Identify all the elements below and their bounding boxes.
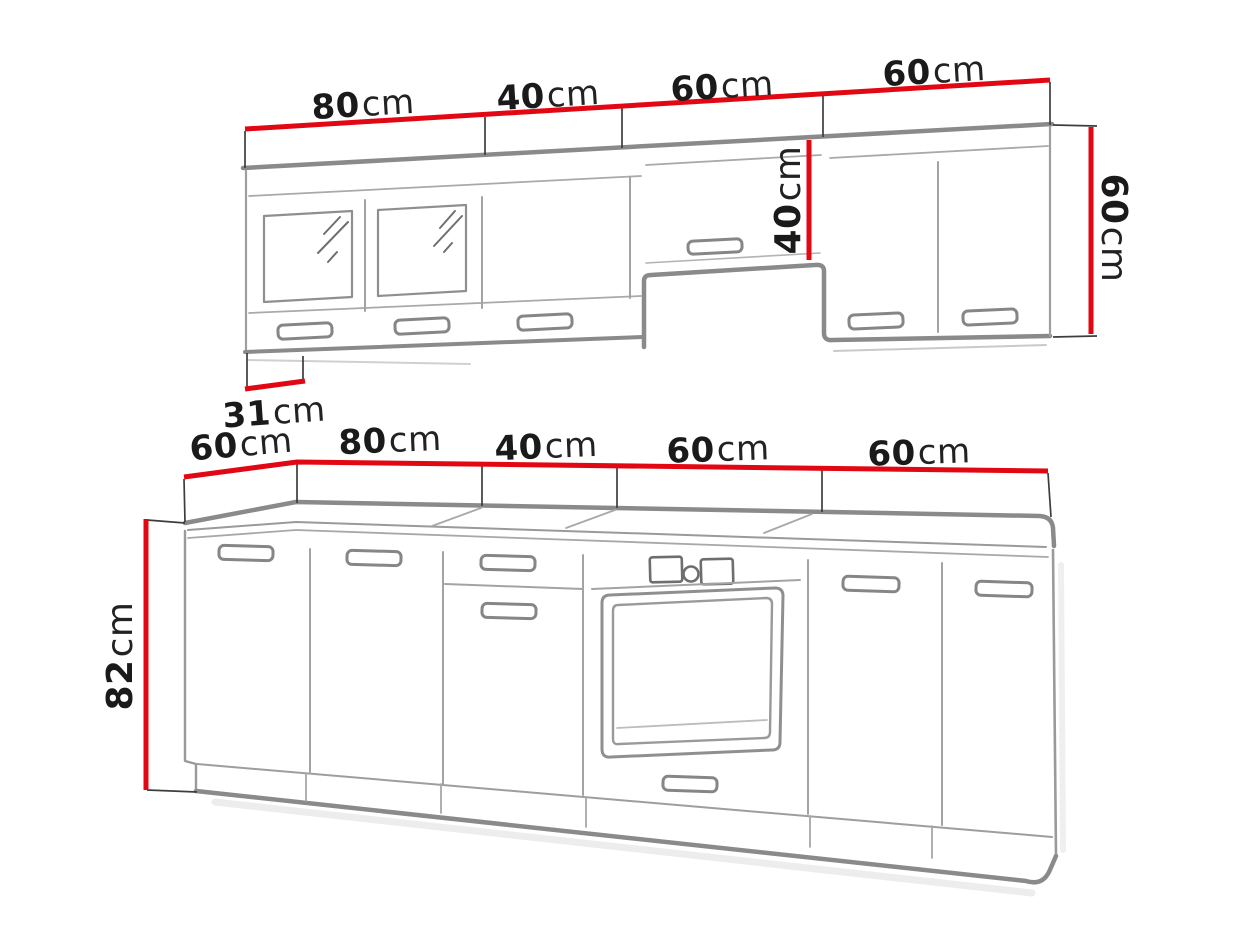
door-handle	[688, 239, 743, 255]
base-width-label-60c: 60cm	[867, 431, 971, 475]
oven-knob-left	[650, 557, 683, 583]
base-height-label-82: 82cm	[100, 602, 141, 711]
door-handle	[963, 309, 1018, 325]
door-handle	[278, 323, 333, 340]
diagram-canvas: 80cm 40cm 60cm 60cm 40cm 60cm 31cm 60cm …	[0, 0, 1238, 929]
oven-door-window	[613, 598, 772, 744]
wall-width-label-80: 80cm	[310, 82, 415, 128]
base-width-label-40: 40cm	[494, 425, 599, 469]
door-handle	[843, 576, 899, 592]
hood-height-label-40: 40cm	[768, 146, 809, 255]
kitchen-dimension-diagram: 80cm 40cm 60cm 60cm 40cm 60cm 31cm 60cm …	[0, 0, 1238, 929]
oven-handle	[663, 776, 717, 792]
door-handle	[219, 545, 273, 560]
wall-width-label-40: 40cm	[495, 73, 600, 119]
oven-knob-center	[684, 567, 699, 582]
wall-right-bottom-shadow	[834, 345, 1046, 351]
side-shadow	[1061, 565, 1063, 850]
base-width-label-80: 80cm	[338, 419, 443, 463]
wall-width-label-60a: 60cm	[669, 64, 774, 110]
oven-knob-right	[701, 559, 734, 585]
wall-height-label-60: 60cm	[1093, 174, 1134, 283]
door-handle	[395, 318, 450, 335]
base-width-label-60b: 60cm	[666, 428, 770, 472]
door-handle	[347, 550, 401, 565]
door-handle	[482, 603, 536, 618]
wall-depth-dimension-line	[245, 381, 305, 389]
drawer-handle	[481, 555, 535, 570]
wall-width-label-60b: 60cm	[881, 49, 986, 95]
door-handle	[849, 313, 904, 329]
wall-left-bottom-shadow	[248, 360, 470, 364]
base-units-elevation	[185, 502, 1063, 893]
door-handle	[976, 581, 1032, 597]
door-handle	[518, 314, 573, 331]
wall-units-elevation	[243, 124, 1052, 364]
